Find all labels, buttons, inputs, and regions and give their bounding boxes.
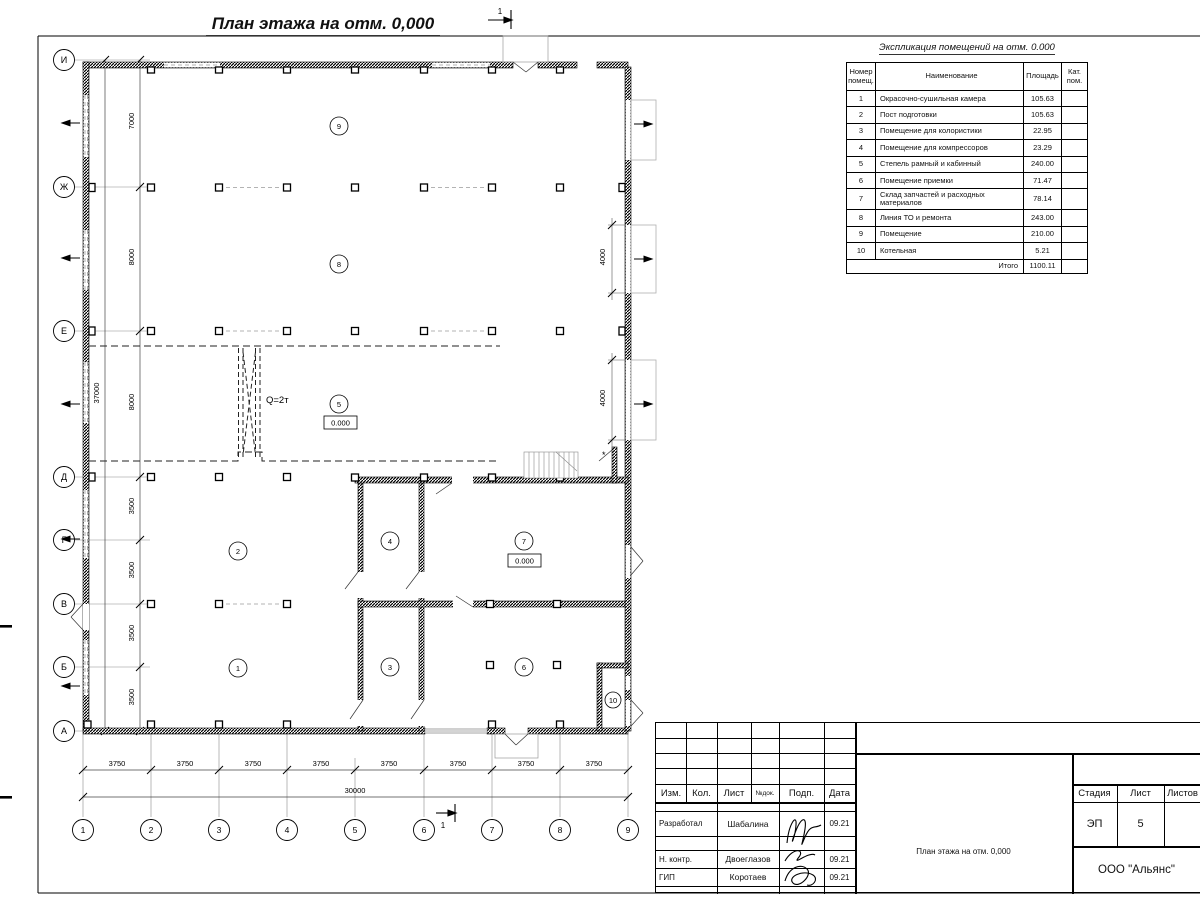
- zone-boundaries: [89, 346, 500, 461]
- svg-text:5: 5: [353, 825, 358, 835]
- svg-text:6: 6: [522, 663, 526, 672]
- explication-table: Номер помещ. Наименование Площадь Кат. п…: [846, 62, 1088, 274]
- table-row: 3Помещение для колористики22.95: [847, 124, 1087, 140]
- tb-sheets-label: Листов: [1164, 784, 1200, 802]
- svg-text:1: 1: [236, 664, 240, 673]
- svg-text:И: И: [61, 55, 67, 65]
- tb-name-ncontrol: Двоеглазов: [717, 850, 779, 868]
- tb-col-podp: Подп.: [779, 784, 824, 802]
- tb-col-data: Дата: [824, 784, 855, 802]
- svg-text:Е: Е: [61, 326, 67, 336]
- svg-text:4: 4: [388, 537, 392, 546]
- title-block: Изм. Кол. Лист №док. Подп. Дата Разработ…: [655, 722, 1200, 893]
- tb-col-kol: Кол.: [686, 784, 717, 802]
- svg-text:0.000: 0.000: [515, 556, 534, 565]
- interior-walls: [355, 447, 628, 731]
- axis-bubbles-rows: ИЖ ЕД ГВ БА: [54, 50, 75, 742]
- table-row: 6Помещение приемки71.47: [847, 173, 1087, 189]
- door-swings: [71, 36, 643, 758]
- svg-text:4000: 4000: [598, 249, 607, 266]
- svg-text:0.000: 0.000: [331, 418, 350, 427]
- svg-text:9: 9: [626, 825, 631, 835]
- room-bubbles: 9 8 5 2 4 7 1 3 6 10: [229, 117, 621, 708]
- elevation-marks: 0.000 0.000: [324, 416, 541, 567]
- svg-text:3750: 3750: [381, 759, 398, 768]
- tb-col-izm: Изм.: [656, 784, 686, 802]
- svg-text:4: 4: [285, 825, 290, 835]
- columns: [84, 67, 625, 728]
- section-marks: [436, 10, 512, 822]
- svg-text:8: 8: [337, 260, 341, 269]
- svg-text:37000: 37000: [92, 383, 101, 404]
- gate-dimension-texts: 4000 4000: [598, 249, 607, 407]
- section-mark-labels: 1 1: [441, 7, 503, 830]
- svg-text:10: 10: [609, 696, 617, 705]
- tb-role-ncontrol: Н. контр.: [656, 850, 720, 868]
- crane-hoist: [239, 348, 261, 459]
- svg-text:1: 1: [81, 825, 86, 835]
- svg-text:Б: Б: [61, 662, 67, 672]
- svg-text:7: 7: [522, 537, 526, 546]
- svg-text:3500: 3500: [127, 689, 136, 706]
- svg-text:30000: 30000: [345, 786, 366, 795]
- svg-text:8: 8: [558, 825, 563, 835]
- svg-text:3: 3: [388, 663, 392, 672]
- svg-text:2: 2: [149, 825, 154, 835]
- svg-text:Д: Д: [61, 472, 67, 482]
- svg-text:6: 6: [422, 825, 427, 835]
- table-row: 5Степель рамный и кабинный240.00: [847, 157, 1087, 173]
- tb-date-ncontrol: 09.21: [824, 850, 855, 868]
- svg-text:3: 3: [217, 825, 222, 835]
- svg-text:3750: 3750: [109, 759, 126, 768]
- svg-text:7: 7: [490, 825, 495, 835]
- tb-company: ООО "Альянс": [1072, 846, 1200, 894]
- tb-stage-value: ЭП: [1072, 802, 1117, 846]
- wall-openings: [83, 63, 656, 726]
- tb-sheet-label: Лист: [1117, 784, 1164, 802]
- tb-name-gip: Коротаев: [717, 868, 779, 886]
- svg-text:3750: 3750: [177, 759, 194, 768]
- svg-text:9: 9: [337, 122, 341, 131]
- svg-text:3750: 3750: [313, 759, 330, 768]
- svg-text:3750: 3750: [450, 759, 467, 768]
- table-row: 2Пост подготовки105.63: [847, 107, 1087, 123]
- stair: [524, 452, 578, 478]
- svg-text:4000: 4000: [598, 390, 607, 407]
- svg-text:2: 2: [236, 547, 240, 556]
- tb-name-developer: Шабалина: [717, 811, 779, 836]
- svg-text:7000: 7000: [127, 113, 136, 130]
- svg-text:1: 1: [441, 821, 446, 830]
- tb-sheet-value: 5: [1117, 802, 1164, 846]
- svg-text:3750: 3750: [245, 759, 262, 768]
- svg-text:Ж: Ж: [60, 182, 69, 192]
- tb-col-ndok: №док.: [751, 784, 779, 802]
- column-connectors: [226, 188, 486, 605]
- table-row: 1Окрасочно-сушильная камера105.63: [847, 91, 1087, 107]
- svg-text:3500: 3500: [127, 625, 136, 642]
- svg-text:3500: 3500: [127, 498, 136, 515]
- drawing-title: План этажа на отм. 0,000: [168, 14, 478, 34]
- tb-doc-title: План этажа на отм. 0,000: [855, 841, 1072, 861]
- svg-text:1: 1: [498, 7, 503, 16]
- tb-col-list: Лист: [717, 784, 751, 802]
- svg-text:5: 5: [337, 400, 341, 409]
- tb-stage-label: Стадия: [1072, 784, 1117, 802]
- table-total-row: Итого 1100.11: [847, 260, 1087, 273]
- explication-title: Экспликация помещений на отм. 0.000: [846, 42, 1088, 53]
- svg-text:3750: 3750: [586, 759, 603, 768]
- tb-role-gip: ГИП: [656, 868, 720, 886]
- exterior-walls: [83, 62, 631, 734]
- table-row: 7Склад запчастей и расходных материалов7…: [847, 189, 1087, 210]
- svg-text:А: А: [61, 726, 67, 736]
- explication-header: Номер помещ. Наименование Площадь Кат. п…: [847, 63, 1087, 91]
- table-row: 10Котельная5.21: [847, 243, 1087, 259]
- svg-text:3750: 3750: [518, 759, 535, 768]
- svg-text:В: В: [61, 599, 67, 609]
- tb-date-developer: 09.21: [824, 811, 855, 836]
- signature: [779, 841, 824, 893]
- svg-text:8000: 8000: [127, 394, 136, 411]
- tb-date-gip: 09.21: [824, 868, 855, 886]
- axis-lines: [74, 60, 628, 817]
- svg-text:3500: 3500: [127, 562, 136, 579]
- drawing-sheet: 7000 8000 8000 3500 3500 3500 3500 37000…: [0, 0, 1200, 900]
- svg-text:8000: 8000: [127, 249, 136, 266]
- axis-bubbles-cols: 12 34 56 78 9: [73, 820, 639, 841]
- table-row: 4Помещение для компрессоров23.29: [847, 140, 1087, 156]
- tb-role-developer: Разработал: [656, 811, 720, 836]
- table-row: 8Линия ТО и ремонта243.00: [847, 210, 1087, 226]
- star-mark: *: [602, 450, 606, 460]
- table-row: 9Помещение210.00: [847, 227, 1087, 243]
- crane-label: Q=2т: [266, 395, 289, 406]
